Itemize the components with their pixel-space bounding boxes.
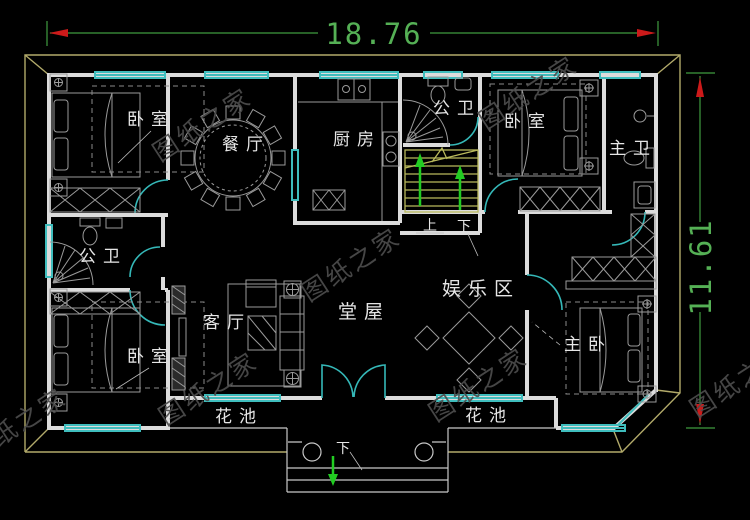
label-bath-left: 公卫 [79, 247, 127, 267]
door-master-bedroom [527, 275, 562, 310]
label-entertainment: 娱乐区 [442, 278, 520, 300]
label-dining: 餐厅 [222, 135, 270, 155]
width-dimension-label: 18.76 [325, 17, 422, 51]
height-dimension-label: 11.61 [684, 218, 718, 315]
floor-plan-drawing: 18.76 11.61 [0, 0, 750, 520]
label-entrance-down: 下 [336, 441, 350, 457]
furniture-kitchen [298, 79, 399, 221]
entrance-porch [287, 428, 448, 492]
watermark-text: 图纸之家 [297, 222, 407, 307]
label-master-bath: 主卫 [609, 139, 657, 159]
dim-arrow-left [49, 29, 68, 37]
label-living: 客厅 [203, 313, 251, 333]
staircase [405, 148, 478, 256]
furniture-master-bedroom [566, 214, 656, 402]
label-stairs-up: 上 [423, 218, 437, 234]
floor-plan-canvas: 18.76 11.61 [0, 0, 750, 520]
dim-arrow-up [696, 77, 704, 97]
furniture-master-bath [624, 110, 655, 208]
dimension-right: 11.61 [684, 73, 718, 428]
label-bath-top: 公卫 [433, 99, 481, 119]
label-kitchen: 厨房 [333, 130, 381, 150]
door-bedroom-tr [485, 179, 518, 212]
watermark-text: 图纸之家 [0, 382, 72, 467]
label-stairs-down: 下 [457, 219, 471, 235]
door-master-bath [612, 212, 645, 245]
dim-arrow-right [637, 29, 656, 37]
label-flower-bed-right: 花池 [465, 406, 513, 426]
double-entrance-door [322, 365, 385, 398]
watermark-text: 图纸之家 [685, 338, 750, 423]
dimension-top: 18.76 [47, 17, 658, 51]
label-master-bedroom: 主卧 [564, 335, 612, 355]
label-bedroom-bl: 卧室 [127, 347, 175, 367]
label-hall: 堂屋 [338, 301, 390, 323]
label-bedroom-tl: 卧室 [127, 110, 175, 130]
door-bath-left [130, 247, 160, 277]
label-flower-bed-left: 花池 [215, 407, 263, 427]
